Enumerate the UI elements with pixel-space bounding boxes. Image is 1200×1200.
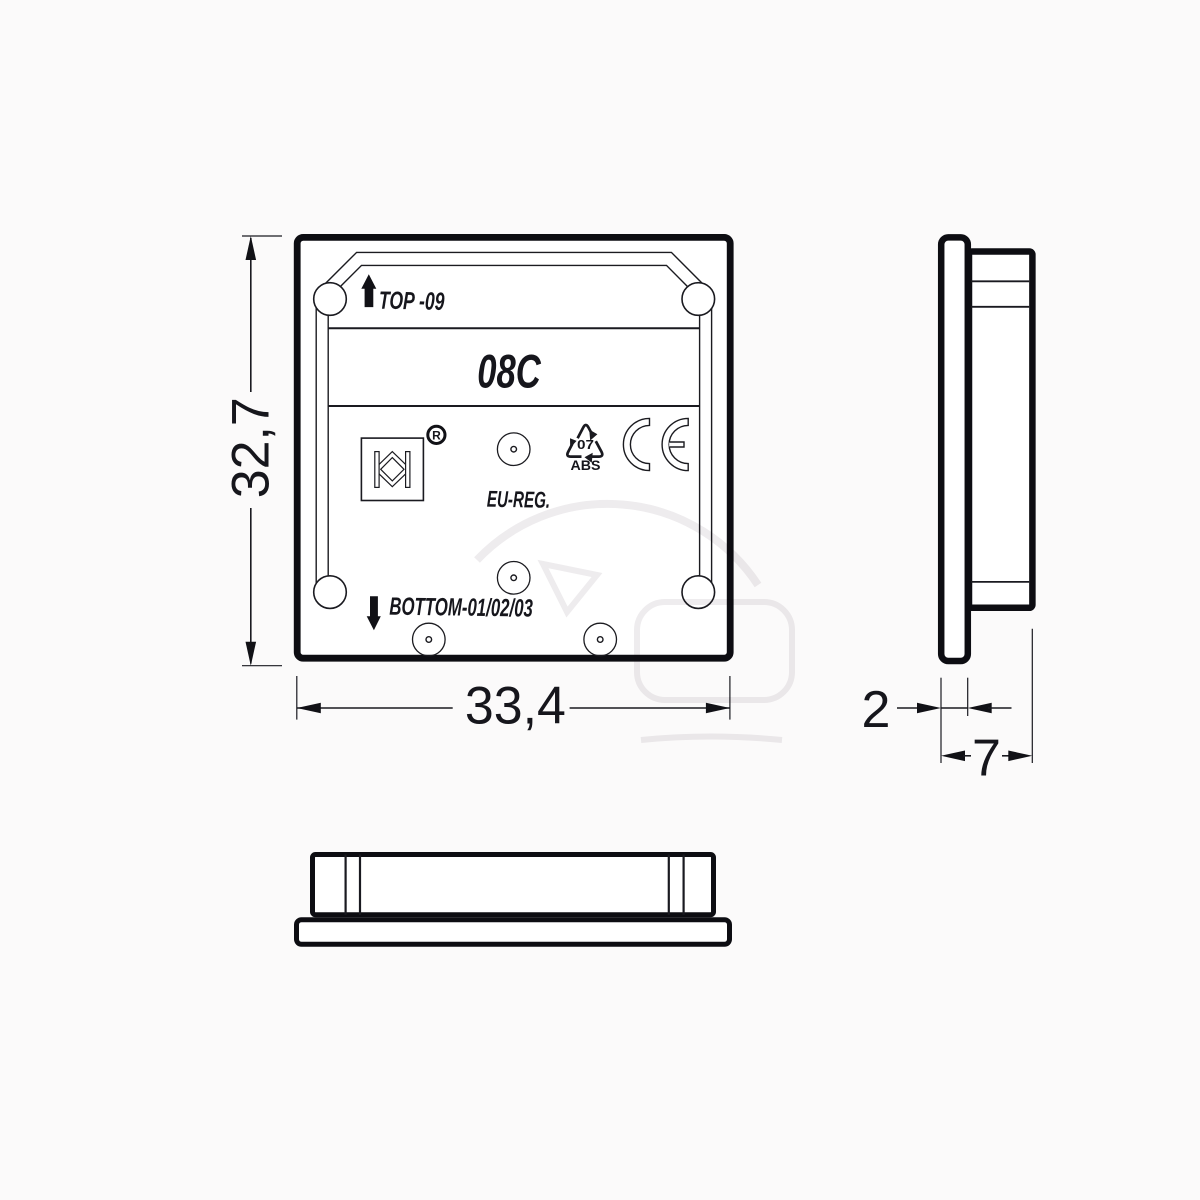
- svg-text:EU-REG.: EU-REG.: [487, 486, 551, 513]
- svg-text:TOP -09: TOP -09: [379, 287, 445, 316]
- svg-text:ABS: ABS: [571, 458, 601, 473]
- svg-text:08C: 08C: [477, 346, 541, 399]
- svg-text:BOTTOM-01/02/03: BOTTOM-01/02/03: [389, 593, 533, 623]
- svg-text:2: 2: [862, 681, 891, 739]
- svg-text:32,7: 32,7: [222, 397, 281, 498]
- svg-text:7: 7: [972, 730, 1001, 788]
- svg-text:R: R: [432, 428, 441, 442]
- svg-text:33,4: 33,4: [465, 676, 566, 735]
- svg-text:07: 07: [577, 437, 594, 452]
